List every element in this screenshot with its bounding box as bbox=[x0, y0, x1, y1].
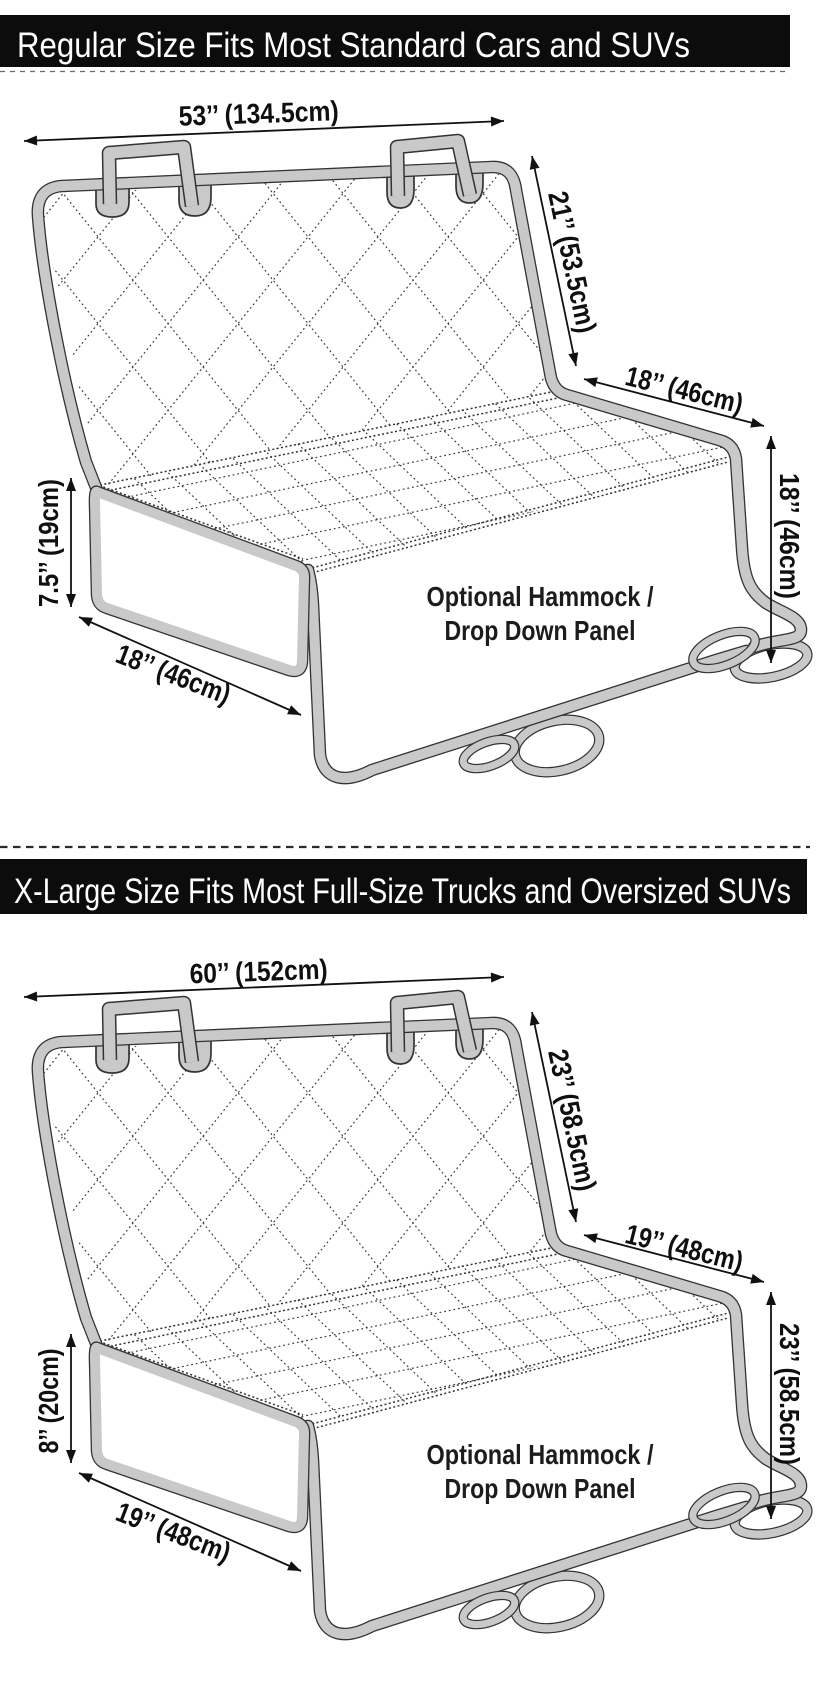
svg-text:Drop Down Panel: Drop Down Panel bbox=[445, 615, 636, 646]
svg-text:23’’ (58.5cm): 23’’ (58.5cm) bbox=[774, 1323, 805, 1465]
svg-text:X-Large Size Fits Most Full-Si: X-Large Size Fits Most Full-Size Trucks … bbox=[14, 872, 791, 911]
svg-text:18’’ (46cm): 18’’ (46cm) bbox=[774, 473, 805, 599]
svg-text:Optional Hammock /: Optional Hammock / bbox=[427, 1439, 654, 1470]
svg-text:Drop Down Panel: Drop Down Panel bbox=[445, 1473, 636, 1504]
svg-text:60’’ (152cm): 60’’ (152cm) bbox=[189, 954, 328, 990]
svg-text:53’’ (134.5cm): 53’’ (134.5cm) bbox=[178, 95, 339, 132]
svg-text:8’’ (20cm): 8’’ (20cm) bbox=[33, 1349, 64, 1454]
svg-text:7.5’’ (19cm): 7.5’’ (19cm) bbox=[33, 479, 64, 607]
svg-text:Optional Hammock /: Optional Hammock / bbox=[427, 581, 654, 612]
svg-text:Regular Size Fits Most Standar: Regular Size Fits Most Standard Cars and… bbox=[17, 26, 690, 65]
